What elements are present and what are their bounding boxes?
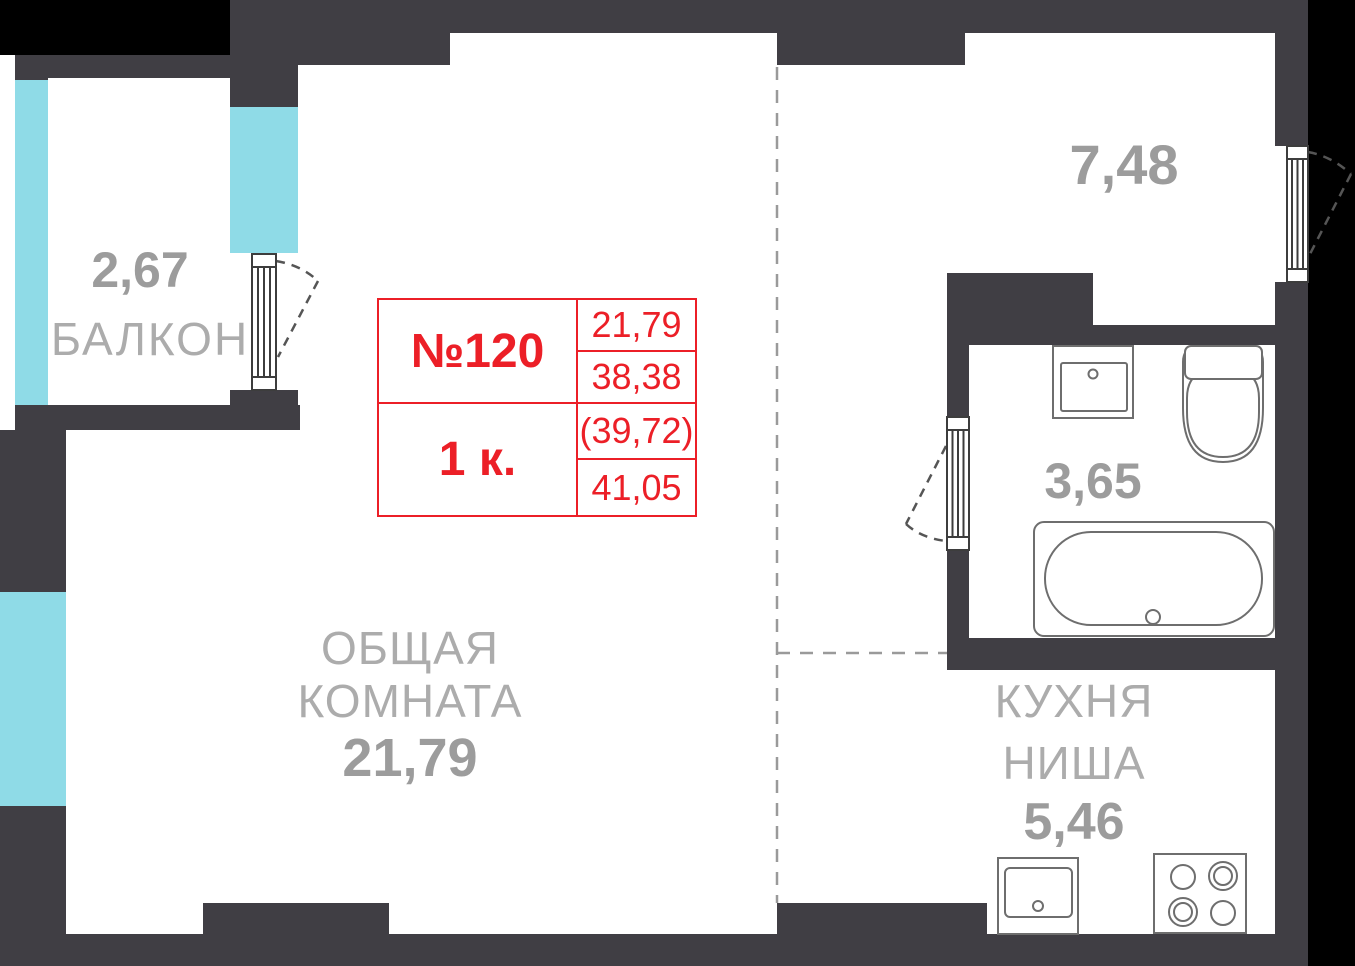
balcony-door-swing-arc: [276, 261, 318, 281]
unit-rooms-count: 1 к.: [379, 404, 578, 515]
toilet-symbol: [1183, 346, 1263, 462]
bathroom-door-swing-arc: [906, 524, 946, 541]
unit-number: №120: [379, 300, 578, 404]
living-room-name-line1: ОБЩАЯ: [250, 622, 570, 675]
unit-reduced-area: (39,72): [578, 404, 695, 460]
kitchen-sink-symbol: [998, 858, 1078, 934]
balcony-door-swing-leaf: [278, 281, 318, 357]
entry-door-symbol: [1287, 146, 1308, 282]
bathroom-area-label: 3,65: [993, 456, 1193, 506]
kitchen-name-line1: КУХНЯ: [924, 670, 1224, 732]
entry-door-swing-leaf: [1310, 174, 1351, 254]
bathtub-symbol: [1034, 522, 1274, 636]
floor-plan: 2,67 БАЛКОН ОБЩАЯ КОМНАТА 21,79 7,48 3,6…: [0, 0, 1355, 966]
kitchen-name-line2: НИША: [924, 732, 1224, 794]
living-room-name-line2: КОМНАТА: [250, 675, 570, 728]
living-room-label: ОБЩАЯ КОМНАТА 21,79: [250, 622, 570, 788]
balcony-area-label: 2,67: [15, 245, 265, 295]
bathroom-door-swing-leaf: [906, 446, 946, 524]
living-room-area: 21,79: [250, 728, 570, 788]
unit-info-table: №120 1 к. 21,79 38,38 (39,72) 41,05: [377, 298, 697, 517]
unit-usable-area: 38,38: [578, 352, 695, 404]
entry-door-swing-arc: [1308, 152, 1351, 174]
kitchen-niche-label: КУХНЯ НИША 5,46: [924, 670, 1224, 850]
unit-total-area: 41,05: [578, 460, 695, 515]
bath-sink-symbol: [1053, 346, 1133, 418]
stove-symbol: [1154, 854, 1246, 933]
balcony-name-label: БАЛКОН: [20, 316, 280, 362]
unit-living-area: 21,79: [578, 300, 695, 352]
bathroom-door-symbol: [947, 417, 969, 550]
kitchen-area: 5,46: [924, 794, 1224, 850]
hall-area-label: 7,48: [1024, 137, 1224, 193]
